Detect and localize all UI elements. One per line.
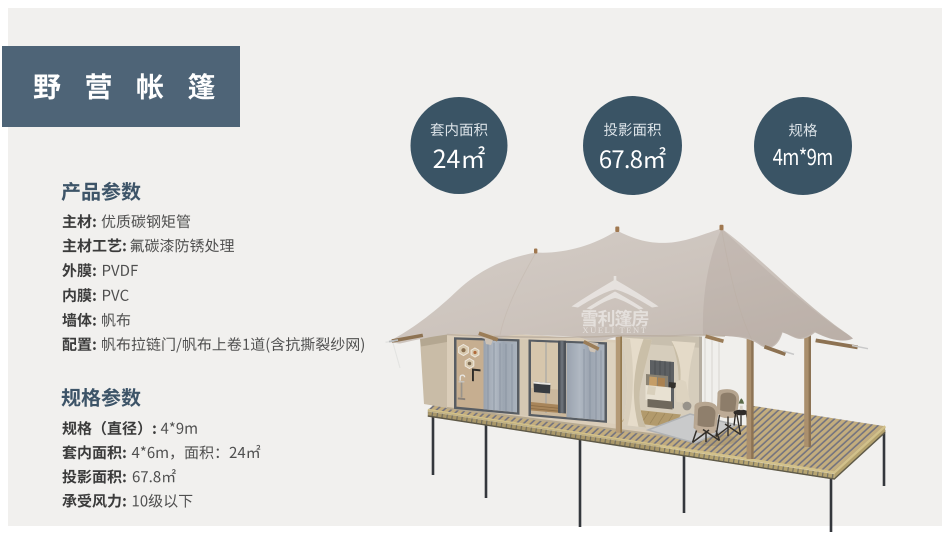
- svg-text:XUELI TENT: XUELI TENT: [582, 325, 647, 335]
